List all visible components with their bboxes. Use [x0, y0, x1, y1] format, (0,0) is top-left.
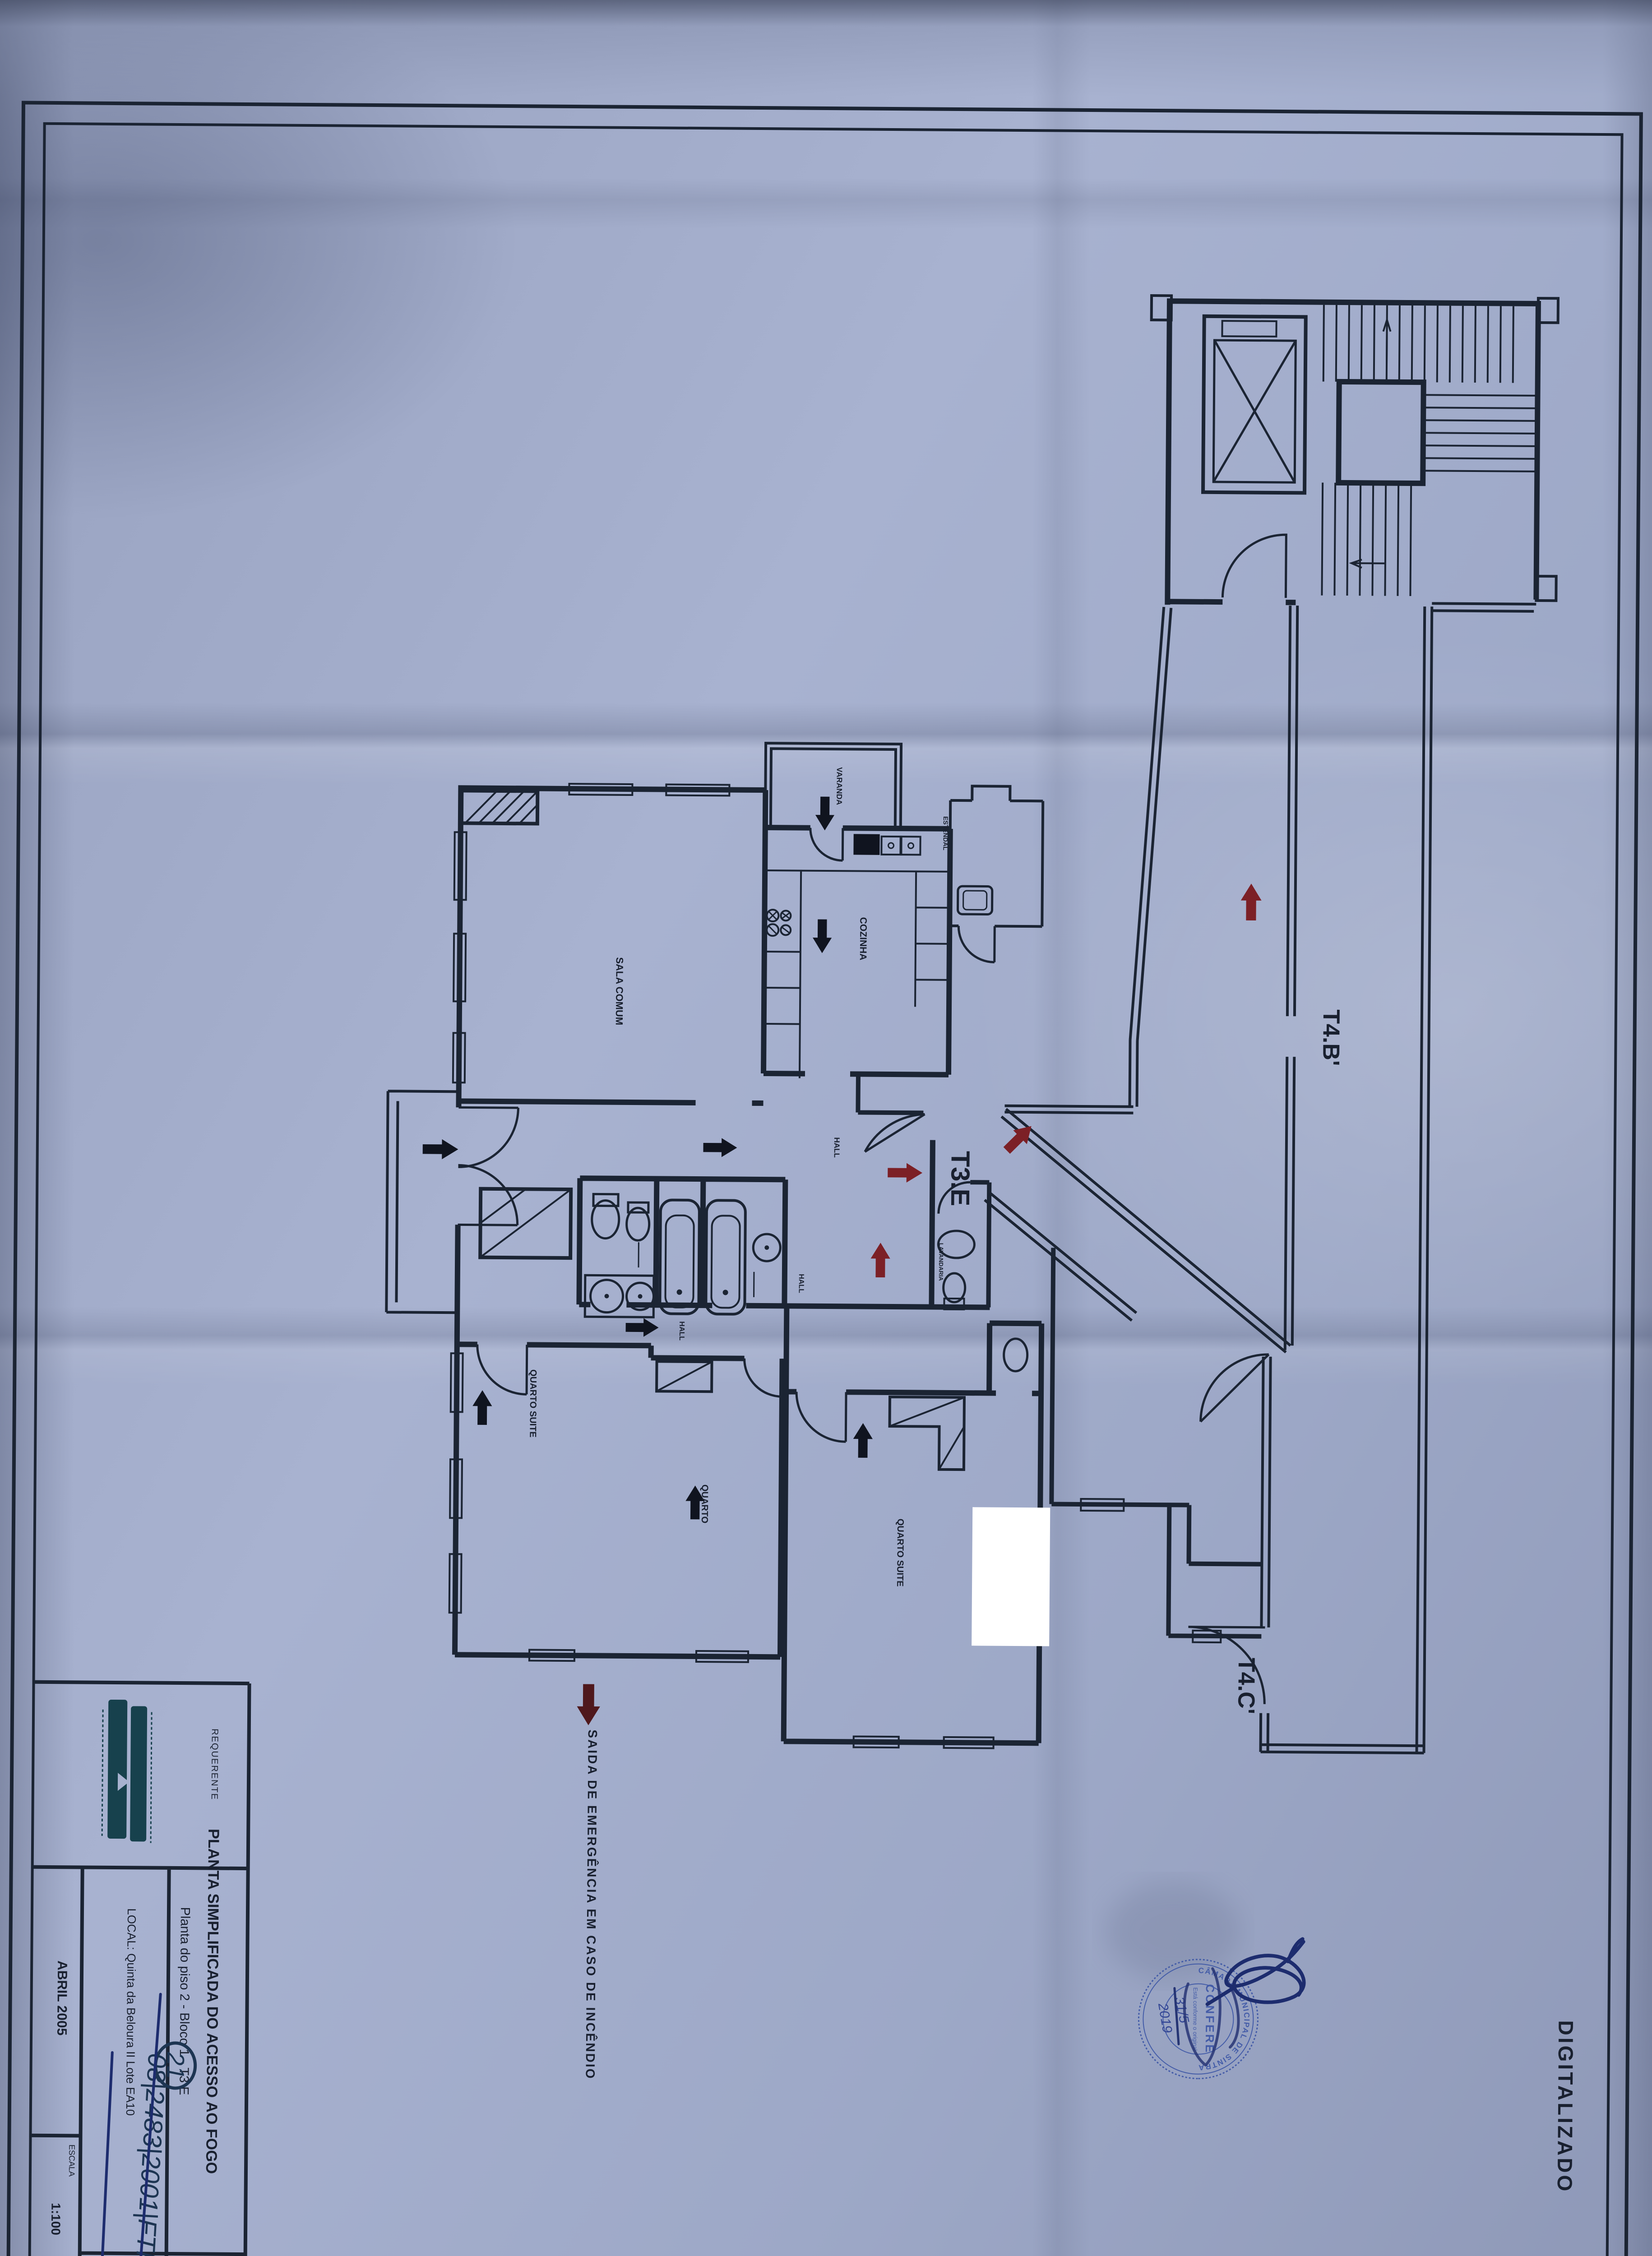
stamp-handwritten-date: 31/5 2019 [1155, 1988, 1192, 2044]
room-label-cozinha: COZINHA [858, 917, 869, 961]
room-label-hall-entrada: HALL [833, 1137, 841, 1157]
title-block-local: LOCAL: Quinta da Beloura II Lote EA10 [124, 1908, 139, 2116]
hatched-corner [461, 791, 537, 823]
room-label-lavandaria: LAVANDARIA [938, 1243, 945, 1281]
watermark-digitalizado: DIGITALIZADO [1553, 2020, 1578, 2193]
unit-label-t4c: T4.C' [1233, 1658, 1259, 1714]
route-arrow [703, 1138, 737, 1157]
elevator [1203, 316, 1306, 493]
exit-arrow [888, 1163, 922, 1183]
scanned-floorplan-photo: SALA COMUM VARANDA COZINHA ESTENDAL HALL… [0, 0, 1652, 2256]
t4-rooms [1050, 1248, 1269, 1643]
title-block: PLANTA SIMPLIFICADA DO ACESSO AO FOGO Pl… [29, 1682, 250, 2256]
kitchen-fittings [764, 833, 950, 1079]
route-arrows [419, 794, 1262, 1730]
handwritten-circled-number: 21 [162, 2052, 189, 2079]
room-label-quarto: QUARTO [699, 1484, 710, 1523]
room-label-sala: SALA COMUM [614, 957, 625, 1025]
room-label-hall-quartos: HALL [678, 1321, 685, 1341]
route-arrow [423, 1139, 458, 1160]
apartment-t3e [384, 740, 1046, 1748]
room-label-estendal: ESTENDAL [942, 816, 949, 851]
title-block-requerente: REQUERENTE [209, 1729, 220, 1800]
hob-burners-icon [767, 910, 791, 936]
room-label-quarto-suite-1: QUARTO SUITE [528, 1369, 538, 1438]
route-arrow [472, 1390, 492, 1425]
exit-arrow [870, 1243, 890, 1277]
title-block-escala-label: ESCALA [67, 2145, 76, 2177]
title-block-title: PLANTA SIMPLIFICADA DO ACESSO AO FOGO [203, 1829, 222, 2174]
route-arrow [625, 1318, 658, 1337]
room-label-hall-meio: HALL [797, 1274, 805, 1293]
stove-icon [853, 834, 879, 855]
route-arrow [815, 796, 835, 830]
staircase [1322, 305, 1536, 597]
stamp-conforme: Está conforme o original [1192, 1988, 1199, 2051]
route-arrow [813, 919, 832, 953]
window [1080, 1499, 1222, 1642]
wardrobe-hatch [480, 1189, 571, 1258]
bathroom-fixtures [584, 1194, 1028, 1371]
title-block-escala-value: 1:100 [49, 2203, 63, 2235]
corridor [981, 600, 1536, 1753]
emergency-exit-note: SAIDA DE EMERGÊNCIA EM CASO DE INCÊNDIO [583, 1729, 599, 2080]
room-label-varanda: VARANDA [835, 767, 844, 805]
stamp-date-bottom: 2019 [1155, 2002, 1175, 2034]
emergency-exit-arrow [577, 1684, 600, 1725]
exit-arrow [1000, 1119, 1038, 1157]
title-block-date: ABRIL 2005 [54, 1960, 69, 2035]
stair-block [1149, 296, 1558, 607]
unit-label-t4b: T4.B' [1318, 1009, 1344, 1066]
windows [449, 783, 1000, 1748]
route-arrow [853, 1423, 873, 1458]
room-label-quarto-suite-2: QUARTO SUITE [895, 1519, 905, 1587]
photo-shadow [1106, 1882, 1241, 1981]
redaction-box [972, 1507, 1050, 1646]
exit-arrow [1240, 883, 1261, 920]
company-logo [102, 1700, 152, 1843]
sheet-frame [8, 103, 1641, 2256]
floorplan-drawing: SALA COMUM VARANDA COZINHA ESTENDAL HALL… [0, 0, 1652, 2256]
unit-label-t3e: T3.E [945, 1151, 975, 1207]
